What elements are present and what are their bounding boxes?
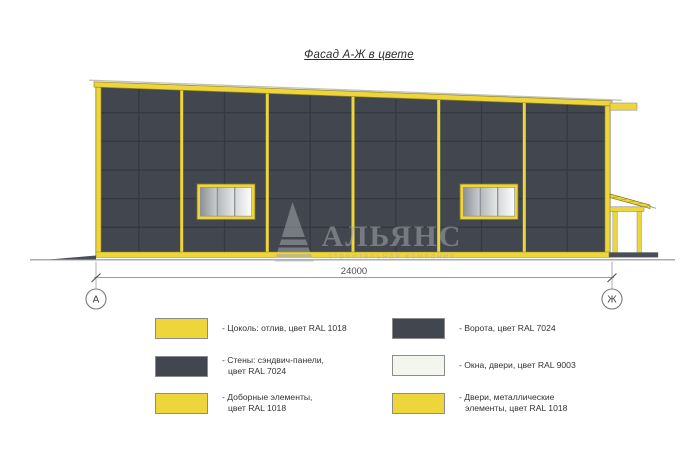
legend-label-walls: - Стены: сэндвич-панели, цвет RAL 7024 xyxy=(222,355,324,377)
legend-swatch-metal-doors xyxy=(392,393,445,414)
legend-label-line: - Стены: сэндвич-панели, xyxy=(222,355,324,366)
legend-label-plinth: - Цоколь: отлив, цвет RAL 1018 xyxy=(222,323,347,334)
legend-item-walls: - Стены: сэндвич-панели, цвет RAL 7024 xyxy=(155,355,324,377)
legend-swatch-plinth xyxy=(155,318,208,339)
legend: - Цоколь: отлив, цвет RAL 1018 - Стены: … xyxy=(0,0,700,474)
legend-label-line: - Двери, металлические xyxy=(459,392,567,403)
legend-label-line: цвет RAL 1018 xyxy=(222,403,312,414)
legend-label-trim-elements: - Доборные элементы, цвет RAL 1018 xyxy=(222,392,312,414)
legend-label-windows-doors: - Окна, двери, цвет RAL 9003 xyxy=(459,360,576,371)
legend-label-gates: - Ворота, цвет RAL 7024 xyxy=(459,323,556,334)
legend-item-trim-elements: - Доборные элементы, цвет RAL 1018 xyxy=(155,392,312,414)
legend-swatch-trim-elements xyxy=(155,393,208,414)
legend-label-metal-doors: - Двери, металлические элементы, цвет RA… xyxy=(459,392,567,414)
legend-label-line: - Ворота, цвет RAL 7024 xyxy=(459,323,556,334)
legend-label-line: - Цоколь: отлив, цвет RAL 1018 xyxy=(222,323,347,334)
page: Фасад А-Ж в цвете xyxy=(0,0,700,474)
legend-item-plinth: - Цоколь: отлив, цвет RAL 1018 xyxy=(155,318,347,339)
legend-swatch-walls xyxy=(155,356,208,377)
legend-label-line: цвет RAL 7024 xyxy=(222,366,324,377)
legend-item-metal-doors: - Двери, металлические элементы, цвет RA… xyxy=(392,392,567,414)
legend-item-gates: - Ворота, цвет RAL 7024 xyxy=(392,318,556,339)
legend-swatch-gates xyxy=(392,318,445,339)
legend-label-line: - Окна, двери, цвет RAL 9003 xyxy=(459,360,576,371)
legend-label-line: элементы, цвет RAL 1018 xyxy=(459,403,567,414)
legend-item-windows-doors: - Окна, двери, цвет RAL 9003 xyxy=(392,355,576,376)
legend-label-line: - Доборные элементы, xyxy=(222,392,312,403)
legend-swatch-windows-doors xyxy=(392,355,445,376)
